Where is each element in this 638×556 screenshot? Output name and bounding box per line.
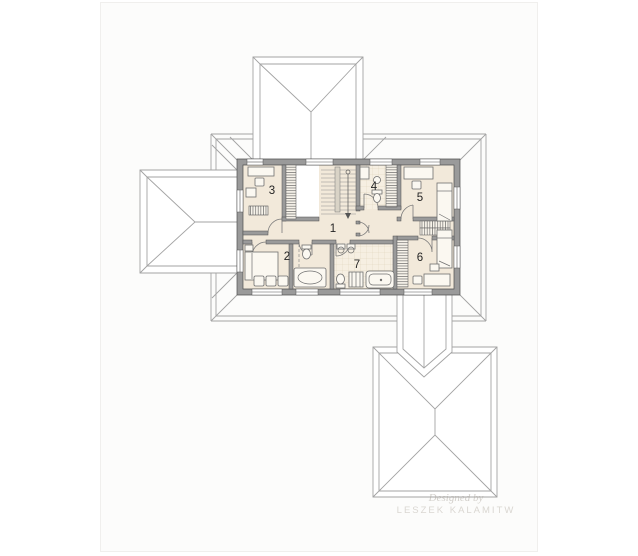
room-label-6: 6 <box>417 252 423 264</box>
room-label-7: 7 <box>354 259 360 271</box>
stairwell-void <box>296 165 319 219</box>
garage-roof <box>373 347 497 497</box>
room-label-5: 5 <box>417 192 423 204</box>
floor-plan: 1 2 3 4 5 6 7 <box>237 159 460 295</box>
roof-left-wing <box>140 145 237 298</box>
room-label-1: 1 <box>330 223 336 235</box>
roof-top-gable <box>253 57 363 160</box>
floor-plan-drawing: 1 2 3 4 5 6 7 <box>0 0 638 556</box>
room-label-4: 4 <box>371 181 378 193</box>
room-label-3: 3 <box>269 185 275 197</box>
room-label-2: 2 <box>284 251 290 263</box>
